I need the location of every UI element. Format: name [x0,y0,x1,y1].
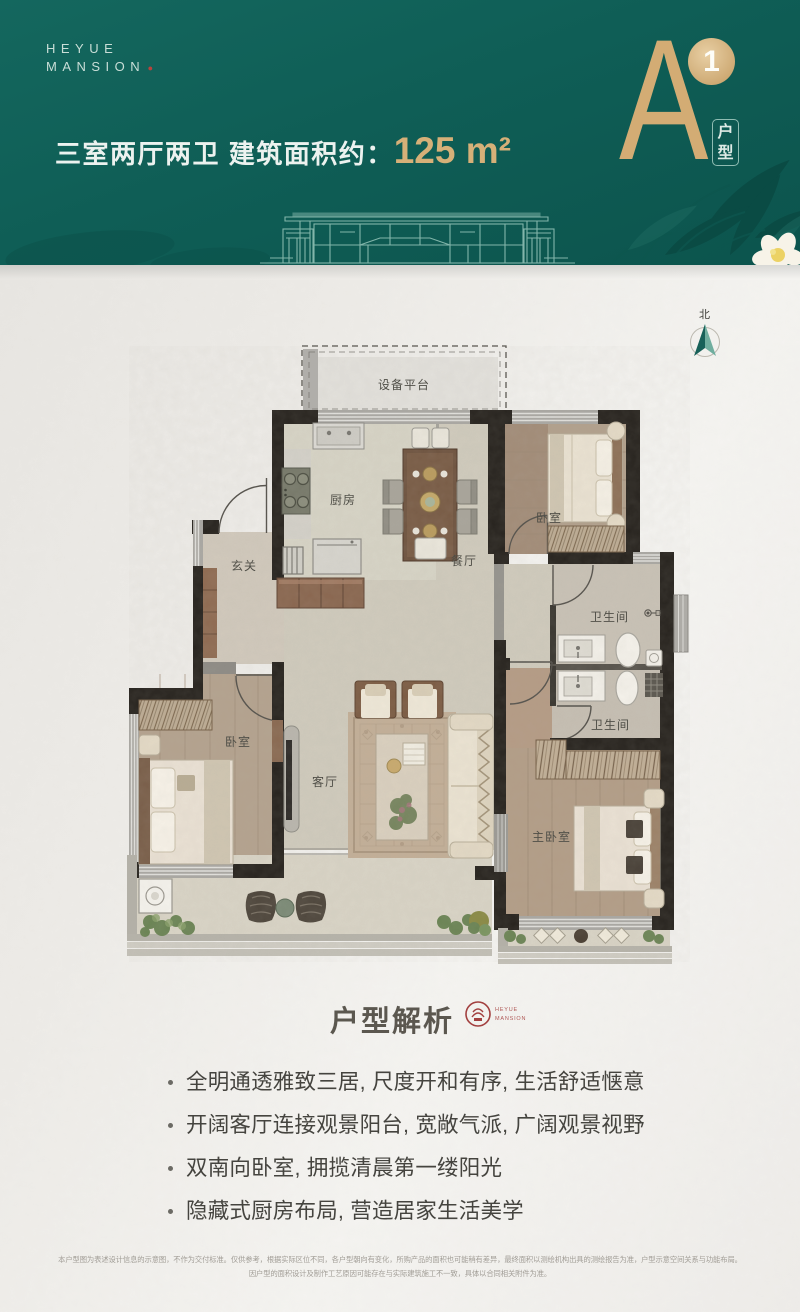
svg-text:MANSION: MANSION [495,1016,526,1022]
svg-text:HEYUE: HEYUE [495,1007,518,1013]
